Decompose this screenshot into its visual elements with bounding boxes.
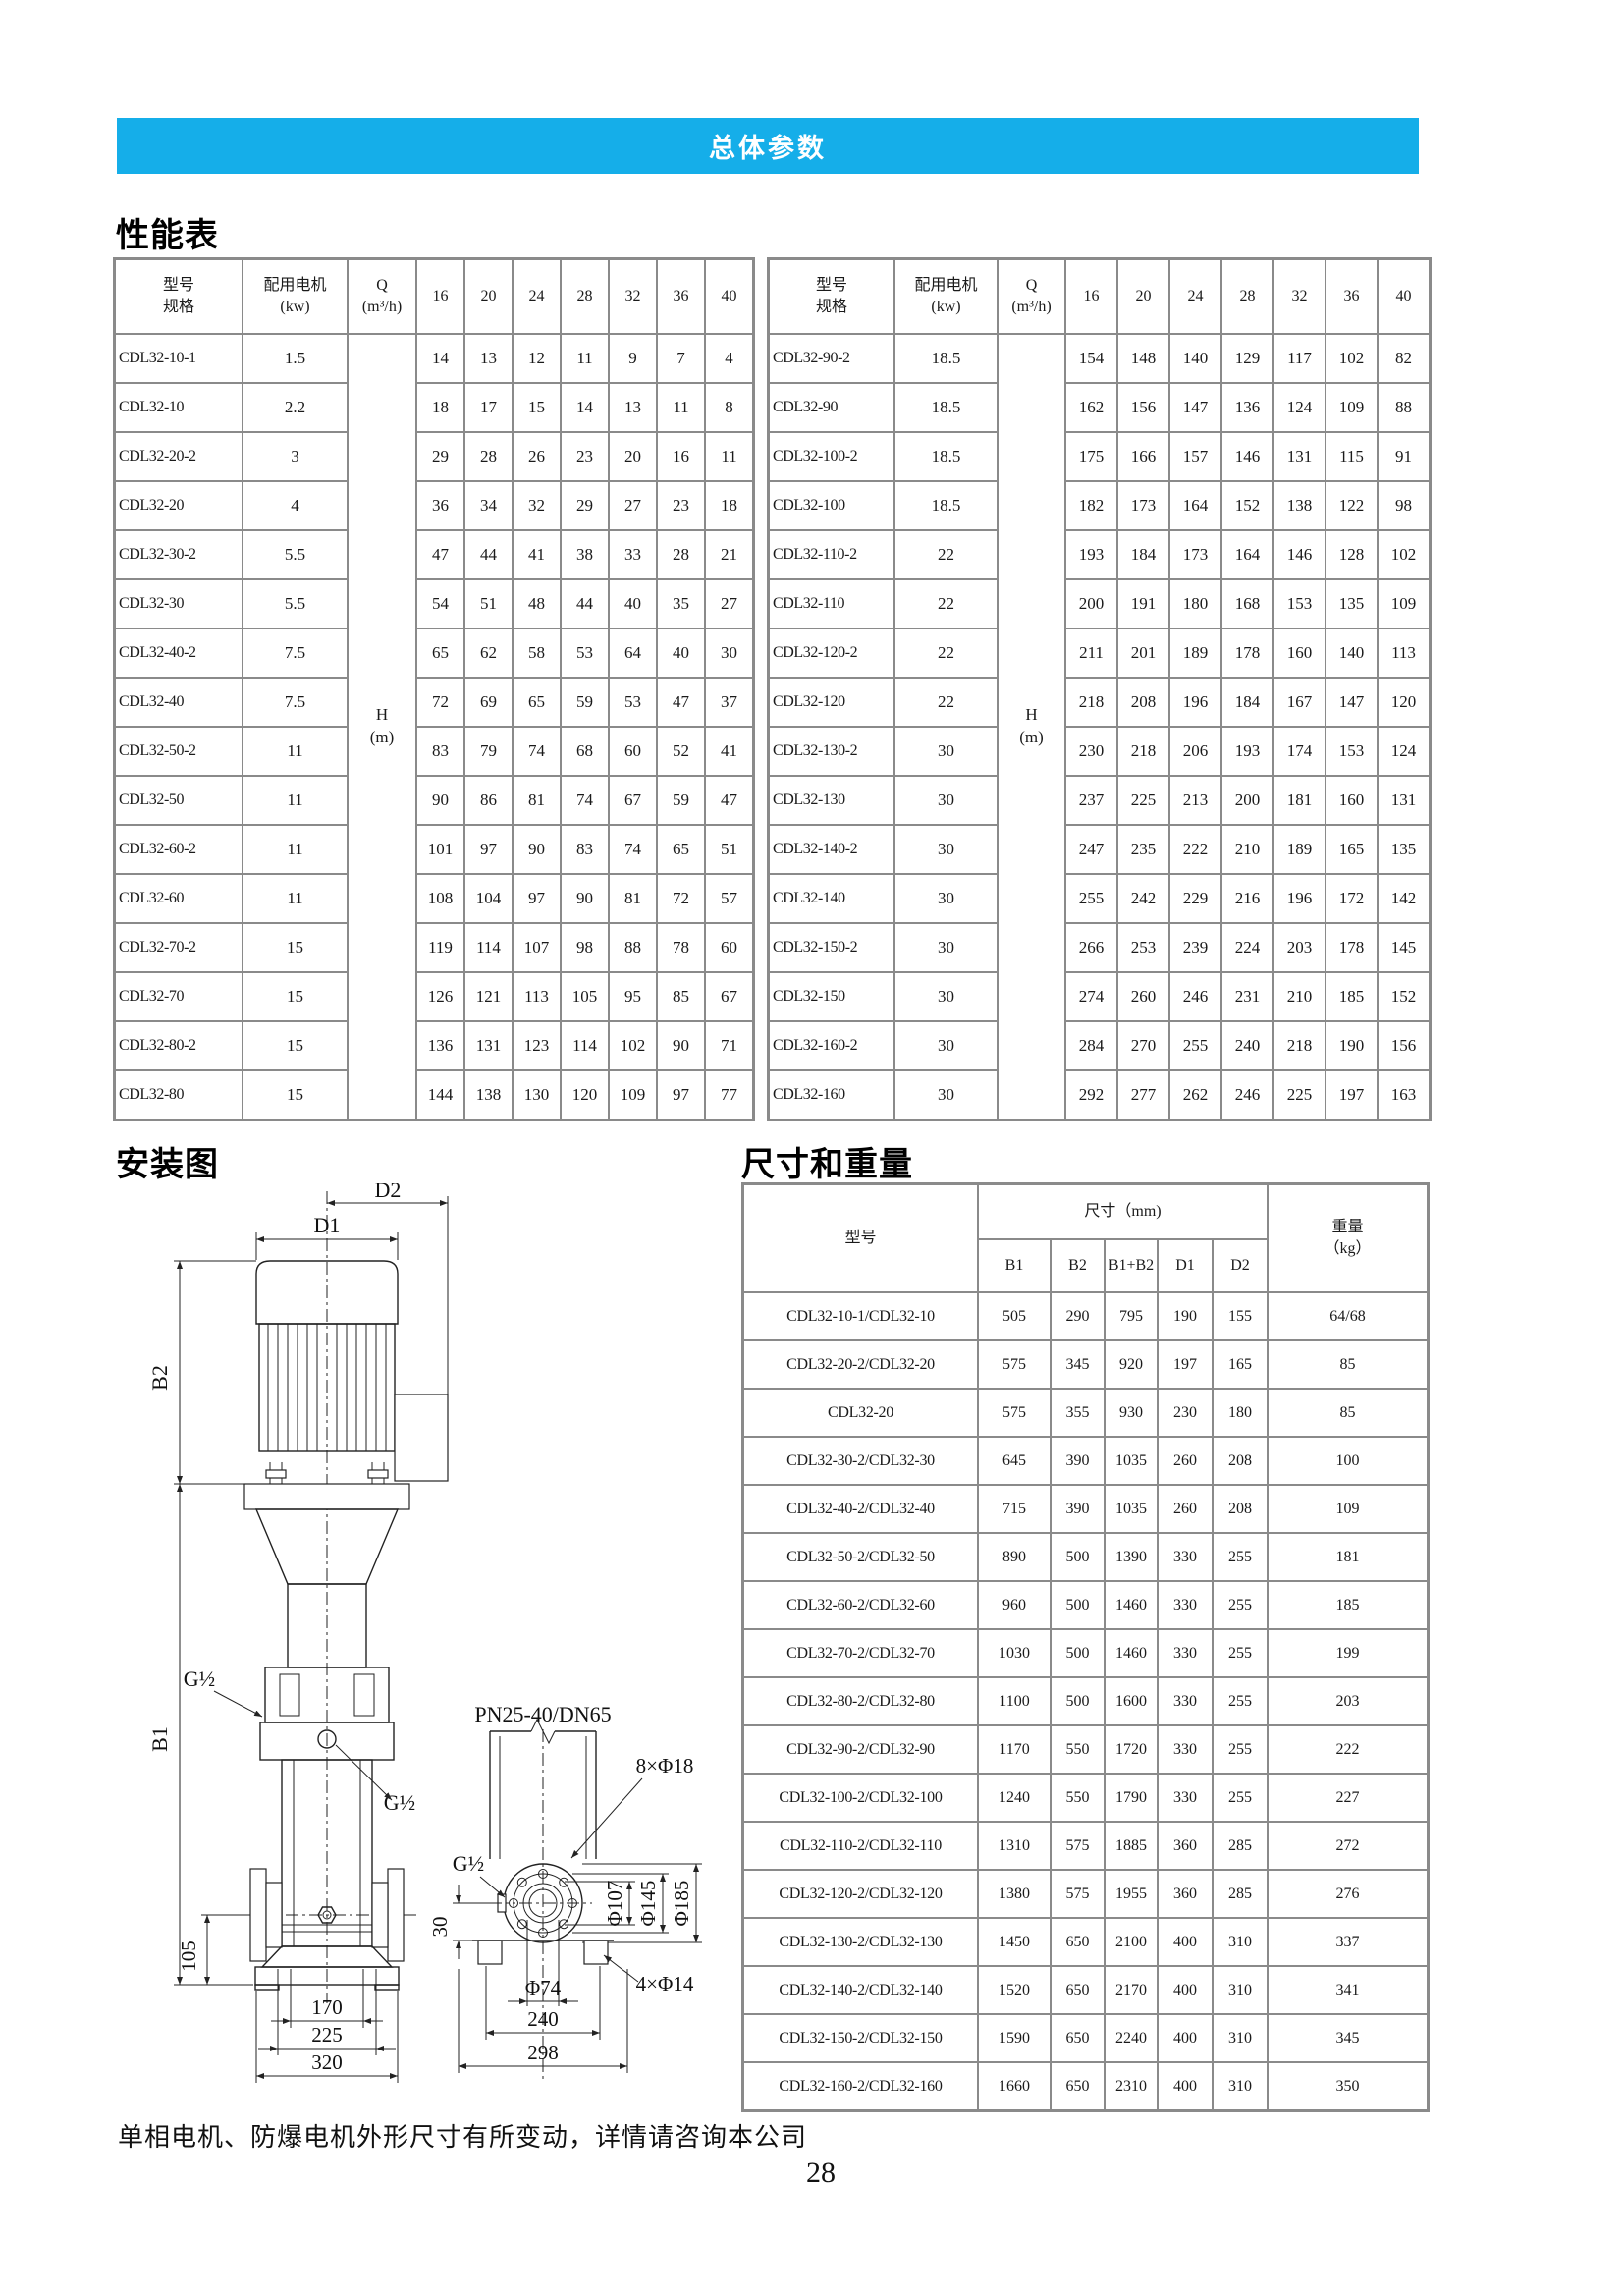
perf-head-cell: 51	[706, 826, 752, 873]
dims-value-cell: 190	[1159, 1293, 1212, 1339]
dims-subheader: D2	[1214, 1240, 1267, 1291]
perf-head-cell: 91	[1379, 433, 1429, 480]
dims-model-cell: CDL32-120-2/CDL32-120	[744, 1871, 977, 1917]
dims-value-cell: 645	[979, 1438, 1050, 1484]
perf-head-cell: 260	[1118, 973, 1168, 1020]
dim-d2: D2	[375, 1183, 402, 1202]
dims-value-cell: 500	[1052, 1678, 1104, 1724]
perf-head-cell: 48	[514, 580, 560, 628]
dims-value-cell: 1240	[979, 1775, 1050, 1821]
perf-header-motor: 配用电机 (kw)	[243, 260, 347, 333]
perf-head-cell: 65	[658, 826, 704, 873]
perf-head-cell: 128	[1326, 531, 1377, 578]
dims-value-cell: 1310	[979, 1823, 1050, 1869]
dims-value-cell: 255	[1214, 1775, 1267, 1821]
perf-head-cell: 175	[1066, 433, 1116, 480]
perf-head-cell: 102	[1379, 531, 1429, 578]
perf-model-cell: CDL32-160	[770, 1071, 893, 1119]
dims-weight-cell: 203	[1269, 1678, 1427, 1724]
perf-model-cell: CDL32-50-2	[116, 728, 242, 775]
dims-weight-cell: 345	[1269, 2015, 1427, 2061]
perf-head-cell: 40	[658, 629, 704, 677]
perf-head-cell: 60	[610, 728, 656, 775]
perf-header-flow: 24	[1170, 260, 1220, 333]
dims-weight-cell: 199	[1269, 1630, 1427, 1676]
dims-value-cell: 500	[1052, 1630, 1104, 1676]
perf-head-cell: 230	[1066, 728, 1116, 775]
perf-kw-cell: 30	[895, 777, 997, 824]
dims-value-cell: 1660	[979, 2063, 1050, 2109]
perf-head-cell: 200	[1066, 580, 1116, 628]
perf-head-cell: 146	[1222, 433, 1272, 480]
perf-kw-cell: 30	[895, 1071, 997, 1119]
perf-head-cell: 184	[1222, 679, 1272, 726]
perf-kw-cell: 15	[243, 1022, 347, 1069]
dims-weight-cell: 100	[1269, 1438, 1427, 1484]
perf-head-cell: 105	[562, 973, 608, 1020]
perf-head-cell: 200	[1222, 777, 1272, 824]
perf-header-q: Q (m³/h)	[349, 260, 415, 333]
perf-model-cell: CDL32-60-2	[116, 826, 242, 873]
perf-head-cell: 8	[706, 384, 752, 431]
dims-value-cell: 260	[1159, 1486, 1212, 1532]
dims-model-cell: CDL32-10-1/CDL32-10	[744, 1293, 977, 1339]
dims-value-cell: 330	[1159, 1726, 1212, 1773]
perf-head-cell: 102	[1326, 335, 1377, 382]
dims-value-cell: 310	[1214, 1919, 1267, 1965]
perf-head-cell: 164	[1222, 531, 1272, 578]
perf-head-cell: 253	[1118, 924, 1168, 971]
perf-head-cell: 140	[1326, 629, 1377, 677]
perf-head-cell: 131	[1274, 433, 1325, 480]
perf-head-cell: 242	[1118, 875, 1168, 922]
perf-head-cell: 203	[1274, 924, 1325, 971]
perf-head-cell: 65	[514, 679, 560, 726]
perf-head-cell: 210	[1274, 973, 1325, 1020]
perf-head-cell: 138	[465, 1071, 512, 1119]
perf-kw-cell: 15	[243, 973, 347, 1020]
dims-value-cell: 1720	[1106, 1726, 1157, 1773]
dims-value-cell: 2310	[1106, 2063, 1157, 2109]
perf-head-cell: 23	[658, 482, 704, 529]
perf-head-cell: 41	[514, 531, 560, 578]
perf-head-cell: 222	[1170, 826, 1220, 873]
perf-head-cell: 178	[1326, 924, 1377, 971]
perf-head-cell: 17	[465, 384, 512, 431]
perf-head-cell: 152	[1379, 973, 1429, 1020]
perf-head-cell: 40	[610, 580, 656, 628]
perf-head-cell: 196	[1274, 875, 1325, 922]
perf-header-flow: 28	[1222, 260, 1272, 333]
dim-30: 30	[428, 1917, 452, 1938]
perf-head-cell: 131	[1379, 777, 1429, 824]
perf-head-cell: 138	[1274, 482, 1325, 529]
perf-head-cell: 14	[417, 335, 463, 382]
perf-head-cell: 78	[658, 924, 704, 971]
perf-head-cell: 270	[1118, 1022, 1168, 1069]
perf-head-cell: 154	[1066, 335, 1116, 382]
perf-head-cell: 197	[1326, 1071, 1377, 1119]
perf-model-cell: CDL32-130	[770, 777, 893, 824]
perf-head-cell: 246	[1222, 1071, 1272, 1119]
perf-head-cell: 88	[1379, 384, 1429, 431]
perf-model-cell: CDL32-140	[770, 875, 893, 922]
perf-head-cell: 206	[1170, 728, 1220, 775]
dim-f107: Φ107	[603, 1881, 626, 1927]
perf-head-cell: 181	[1274, 777, 1325, 824]
perf-head-cell: 240	[1222, 1022, 1272, 1069]
dims-value-cell: 310	[1214, 2063, 1267, 2109]
dims-value-cell: 960	[979, 1582, 1050, 1628]
dims-value-cell: 650	[1052, 1967, 1104, 2013]
perf-model-cell: CDL32-70	[116, 973, 242, 1020]
perf-head-cell: 189	[1170, 629, 1220, 677]
dims-value-cell: 255	[1214, 1534, 1267, 1580]
perf-head-cell: 211	[1066, 629, 1116, 677]
perf-head-cell: 162	[1066, 384, 1116, 431]
perf-head-cell: 274	[1066, 973, 1116, 1020]
perf-head-cell: 231	[1222, 973, 1272, 1020]
dims-header-weight: 重量 （kg）	[1269, 1185, 1427, 1291]
perf-head-cell: 172	[1326, 875, 1377, 922]
perf-header-flow: 32	[610, 260, 656, 333]
perf-kw-cell: 11	[243, 826, 347, 873]
perf-head-cell: 246	[1170, 973, 1220, 1020]
perf-kw-cell: 18.5	[895, 384, 997, 431]
perf-head-cell: 153	[1326, 728, 1377, 775]
perf-model-cell: CDL32-80	[116, 1071, 242, 1119]
dims-subheader: B1	[979, 1240, 1050, 1291]
dims-value-cell: 285	[1214, 1823, 1267, 1869]
perf-head-cell: 51	[465, 580, 512, 628]
perf-head-cell: 74	[514, 728, 560, 775]
perf-head-cell: 74	[562, 777, 608, 824]
dims-subheader: B2	[1052, 1240, 1104, 1291]
dims-value-cell: 255	[1214, 1678, 1267, 1724]
perf-head-cell: 191	[1118, 580, 1168, 628]
dims-value-cell: 155	[1214, 1293, 1267, 1339]
dims-value-cell: 290	[1052, 1293, 1104, 1339]
dims-value-cell: 2100	[1106, 1919, 1157, 1965]
perf-model-cell: CDL32-150-2	[770, 924, 893, 971]
dims-value-cell: 500	[1052, 1582, 1104, 1628]
dims-value-cell: 1035	[1106, 1486, 1157, 1532]
perf-head-cell: 120	[1379, 679, 1429, 726]
perf-head-cell: 239	[1170, 924, 1220, 971]
perf-head-cell: 292	[1066, 1071, 1116, 1119]
dims-model-cell: CDL32-140-2/CDL32-140	[744, 1967, 977, 2013]
dimensions-heading: 尺寸和重量	[741, 1137, 913, 1185]
perf-head-cell: 163	[1379, 1071, 1429, 1119]
dims-value-cell: 2170	[1106, 1967, 1157, 2013]
dims-value-cell: 1390	[1106, 1534, 1157, 1580]
section-banner: 总体参数	[117, 118, 1419, 174]
perf-header-motor: 配用电机 (kw)	[895, 260, 997, 333]
dims-value-cell: 1590	[979, 2015, 1050, 2061]
dims-value-cell: 255	[1214, 1726, 1267, 1773]
perf-head-cell: 196	[1170, 679, 1220, 726]
dims-header-model: 型号	[744, 1185, 977, 1291]
perf-head-cell: 62	[465, 629, 512, 677]
perf-head-cell: 147	[1170, 384, 1220, 431]
perf-kw-cell: 11	[243, 875, 347, 922]
dims-weight-cell: 337	[1269, 1919, 1427, 1965]
perf-head-cell: 59	[658, 777, 704, 824]
dims-model-cell: CDL32-20	[744, 1390, 977, 1436]
dims-value-cell: 400	[1159, 1967, 1212, 2013]
perf-head-cell: 14	[562, 384, 608, 431]
perf-head-cell: 144	[417, 1071, 463, 1119]
dims-value-cell: 390	[1052, 1486, 1104, 1532]
dims-value-cell: 2240	[1106, 2015, 1157, 2061]
perf-head-cell: 97	[514, 875, 560, 922]
perf-head-cell: 216	[1222, 875, 1272, 922]
dims-value-cell: 1035	[1106, 1438, 1157, 1484]
perf-kw-cell: 15	[243, 1071, 347, 1119]
perf-head-cell: 67	[610, 777, 656, 824]
perf-kw-cell: 22	[895, 679, 997, 726]
perf-model-cell: CDL32-40	[116, 679, 242, 726]
perf-head-cell: 113	[1379, 629, 1429, 677]
dims-model-cell: CDL32-110-2/CDL32-110	[744, 1823, 977, 1869]
perf-head-cell: 90	[417, 777, 463, 824]
dim-298: 298	[527, 2041, 559, 2064]
perf-head-cell: 59	[562, 679, 608, 726]
perf-head-cell: 16	[658, 433, 704, 480]
dims-value-cell: 575	[1052, 1871, 1104, 1917]
perf-head-cell: 98	[562, 924, 608, 971]
dims-value-cell: 208	[1214, 1438, 1267, 1484]
dims-value-cell: 208	[1214, 1486, 1267, 1532]
perf-header-q: Q (m³/h)	[999, 260, 1064, 333]
perf-head-cell: 97	[465, 826, 512, 873]
perf-head-cell: 28	[658, 531, 704, 578]
perf-head-cell: 145	[1379, 924, 1429, 971]
perf-head-cell: 224	[1222, 924, 1272, 971]
perf-head-cell: 122	[1326, 482, 1377, 529]
dims-model-cell: CDL32-50-2/CDL32-50	[744, 1534, 977, 1580]
perf-header-flow: 36	[658, 260, 704, 333]
perf-head-cell: 160	[1274, 629, 1325, 677]
perf-head-cell: 136	[417, 1022, 463, 1069]
perf-head-cell: 98	[1379, 482, 1429, 529]
dims-weight-cell: 227	[1269, 1775, 1427, 1821]
perf-head-cell: 152	[1222, 482, 1272, 529]
foot-hole-callout: 4×Φ14	[636, 1972, 694, 1995]
perf-kw-cell: 1.5	[243, 335, 347, 382]
perf-head-cell: 13	[610, 384, 656, 431]
perf-head-cell: 146	[1274, 531, 1325, 578]
dims-weight-cell: 272	[1269, 1823, 1427, 1869]
perf-head-cell: 247	[1066, 826, 1116, 873]
perf-header-flow: 36	[1326, 260, 1377, 333]
perf-model-cell: CDL32-110	[770, 580, 893, 628]
perf-head-cell: 124	[1274, 384, 1325, 431]
dims-model-cell: CDL32-160-2/CDL32-160	[744, 2063, 977, 2109]
dims-value-cell: 1790	[1106, 1775, 1157, 1821]
perf-head-cell: 72	[658, 875, 704, 922]
perf-head-cell: 60	[706, 924, 752, 971]
dims-value-cell: 230	[1159, 1390, 1212, 1436]
perf-head-cell: 218	[1066, 679, 1116, 726]
perf-head-cell: 58	[514, 629, 560, 677]
perf-model-cell: CDL32-150	[770, 973, 893, 1020]
perf-kw-cell: 30	[895, 728, 997, 775]
perf-head-cell: 114	[465, 924, 512, 971]
perf-head-cell: 11	[658, 384, 704, 431]
dims-subheader: D1	[1159, 1240, 1212, 1291]
perf-head-cell: 213	[1170, 777, 1220, 824]
dims-value-cell: 1380	[979, 1871, 1050, 1917]
foot-right	[584, 1941, 608, 1964]
perf-head-cell: 124	[1379, 728, 1429, 775]
dims-value-cell: 1170	[979, 1726, 1050, 1773]
dims-weight-cell: 85	[1269, 1390, 1427, 1436]
perf-head-cell: 15	[514, 384, 560, 431]
perf-head-cell: 4	[706, 335, 752, 382]
perf-model-cell: CDL32-120	[770, 679, 893, 726]
terminal-box	[395, 1394, 448, 1481]
perf-head-cell: 113	[514, 973, 560, 1020]
perf-model-cell: CDL32-30	[116, 580, 242, 628]
perf-model-cell: CDL32-90	[770, 384, 893, 431]
perf-head-cell: 11	[562, 335, 608, 382]
perf-kw-cell: 11	[243, 728, 347, 775]
perf-head-cell: 81	[514, 777, 560, 824]
perf-kw-cell: 22	[895, 629, 997, 677]
perf-head-cell: 57	[706, 875, 752, 922]
dims-value-cell: 197	[1159, 1341, 1212, 1388]
perf-model-cell: CDL32-120-2	[770, 629, 893, 677]
perf-head-cell: 27	[610, 482, 656, 529]
perf-head-cell: 37	[706, 679, 752, 726]
perf-kw-cell: 5.5	[243, 531, 347, 578]
perf-head-cell: 95	[610, 973, 656, 1020]
dims-subheader: B1+B2	[1106, 1240, 1157, 1291]
dimensions-weight-table: 型号尺寸（mm)重量 （kg）B1B2B1+B2D1D2CDL32-10-1/C…	[741, 1182, 1430, 2112]
perf-head-cell: 88	[610, 924, 656, 971]
dims-value-cell: 500	[1052, 1534, 1104, 1580]
perf-h-unit-cell: H (m)	[999, 335, 1064, 1119]
perf-model-cell: CDL32-110-2	[770, 531, 893, 578]
dim-b1: B1	[147, 1726, 172, 1752]
dims-value-cell: 165	[1214, 1341, 1267, 1388]
motor-flange	[244, 1484, 409, 1509]
perf-head-cell: 136	[1222, 384, 1272, 431]
g-half-label-2: G½	[384, 1790, 415, 1815]
perf-head-cell: 65	[417, 629, 463, 677]
perf-head-cell: 29	[417, 433, 463, 480]
perf-head-cell: 148	[1118, 335, 1168, 382]
suction-flange	[250, 1869, 266, 1961]
perf-head-cell: 115	[1326, 433, 1377, 480]
dim-f185: Φ185	[670, 1881, 693, 1927]
dims-value-cell: 650	[1052, 2015, 1104, 2061]
perf-head-cell: 130	[514, 1071, 560, 1119]
dims-model-cell: CDL32-70-2/CDL32-70	[744, 1630, 977, 1676]
perf-head-cell: 237	[1066, 777, 1116, 824]
perf-head-cell: 11	[706, 433, 752, 480]
dims-value-cell: 330	[1159, 1630, 1212, 1676]
perf-head-cell: 32	[514, 482, 560, 529]
perf-head-cell: 142	[1379, 875, 1429, 922]
dims-value-cell: 930	[1106, 1390, 1157, 1436]
perf-head-cell: 235	[1118, 826, 1168, 873]
perf-head-cell: 27	[706, 580, 752, 628]
perf-head-cell: 12	[514, 335, 560, 382]
perf-head-cell: 193	[1222, 728, 1272, 775]
dim-320: 320	[311, 2050, 343, 2074]
perf-head-cell: 30	[706, 629, 752, 677]
perf-head-cell: 44	[465, 531, 512, 578]
perf-head-cell: 135	[1326, 580, 1377, 628]
perf-model-cell: CDL32-80-2	[116, 1022, 242, 1069]
perf-head-cell: 34	[465, 482, 512, 529]
perf-head-cell: 147	[1326, 679, 1377, 726]
perf-header-flow: 20	[465, 260, 512, 333]
dims-model-cell: CDL32-80-2/CDL32-80	[744, 1678, 977, 1724]
perf-head-cell: 173	[1118, 482, 1168, 529]
perf-head-cell: 114	[562, 1022, 608, 1069]
perf-kw-cell: 18.5	[895, 482, 997, 529]
perf-head-cell: 208	[1118, 679, 1168, 726]
perf-kw-cell: 2.2	[243, 384, 347, 431]
perf-head-cell: 131	[465, 1022, 512, 1069]
dims-value-cell: 890	[979, 1534, 1050, 1580]
perf-head-cell: 90	[514, 826, 560, 873]
perf-head-cell: 189	[1274, 826, 1325, 873]
perf-header-model: 型号 规格	[770, 260, 893, 333]
perf-kw-cell: 22	[895, 580, 997, 628]
perf-head-cell: 38	[562, 531, 608, 578]
perf-head-cell: 47	[706, 777, 752, 824]
dims-value-cell: 400	[1159, 2015, 1212, 2061]
perf-head-cell: 64	[610, 629, 656, 677]
perf-head-cell: 164	[1170, 482, 1220, 529]
perf-head-cell: 190	[1326, 1022, 1377, 1069]
pn-label: PN25-40/DN65	[474, 1702, 611, 1726]
dims-value-cell: 550	[1052, 1775, 1104, 1821]
perf-head-cell: 156	[1379, 1022, 1429, 1069]
perf-header-flow: 24	[514, 260, 560, 333]
perf-head-cell: 167	[1274, 679, 1325, 726]
dims-value-cell: 360	[1159, 1823, 1212, 1869]
perf-head-cell: 52	[658, 728, 704, 775]
perf-head-cell: 28	[465, 433, 512, 480]
dims-model-cell: CDL32-40-2/CDL32-40	[744, 1486, 977, 1532]
perf-model-cell: CDL32-100	[770, 482, 893, 529]
perf-model-cell: CDL32-70-2	[116, 924, 242, 971]
dim-105: 105	[177, 1941, 200, 1972]
dims-value-cell: 390	[1052, 1438, 1104, 1484]
performance-heading: 性能表	[116, 208, 219, 256]
dims-value-cell: 330	[1159, 1534, 1212, 1580]
perf-head-cell: 229	[1170, 875, 1220, 922]
dims-weight-cell: 64/68	[1269, 1293, 1427, 1339]
footer-note: 单相电机、防爆电机外形尺寸有所变动，详情请咨询本公司	[118, 2117, 807, 2154]
perf-head-cell: 185	[1326, 973, 1377, 1020]
perf-head-cell: 117	[1274, 335, 1325, 382]
perf-kw-cell: 15	[243, 924, 347, 971]
perf-head-cell: 83	[417, 728, 463, 775]
perf-kw-cell: 18.5	[895, 335, 997, 382]
perf-head-cell: 53	[562, 629, 608, 677]
dims-value-cell: 180	[1214, 1390, 1267, 1436]
perf-head-cell: 277	[1118, 1071, 1168, 1119]
dims-value-cell: 505	[979, 1293, 1050, 1339]
perf-head-cell: 184	[1118, 531, 1168, 578]
dims-weight-cell: 181	[1269, 1534, 1427, 1580]
